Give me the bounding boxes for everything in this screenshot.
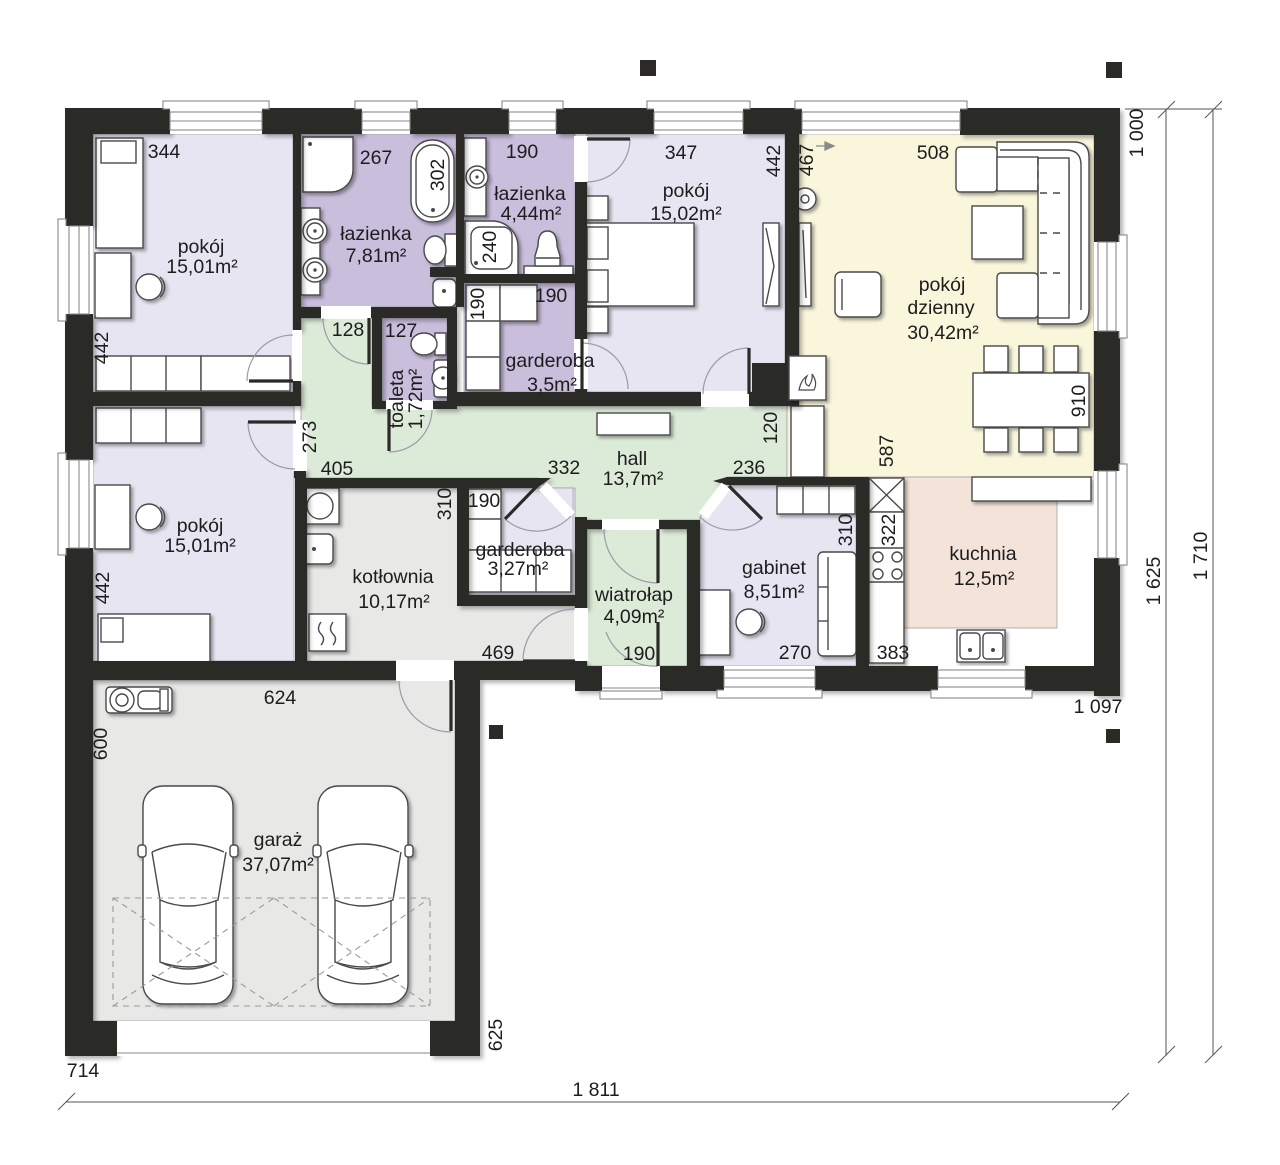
- svg-text:442: 442: [91, 332, 113, 365]
- svg-text:4,44m²: 4,44m²: [501, 203, 562, 225]
- svg-text:3,5m²: 3,5m²: [527, 374, 577, 396]
- svg-text:190: 190: [535, 285, 568, 307]
- svg-text:624: 624: [264, 687, 297, 709]
- svg-text:gabinet: gabinet: [742, 557, 807, 579]
- svg-text:120: 120: [760, 412, 782, 445]
- svg-text:127: 127: [385, 320, 418, 342]
- svg-text:wiatrołap: wiatrołap: [594, 584, 673, 606]
- svg-text:pokój: pokój: [919, 274, 966, 296]
- svg-text:pokój: pokój: [177, 515, 224, 537]
- svg-text:37,07m²: 37,07m²: [242, 854, 314, 876]
- svg-text:7,81m²: 7,81m²: [346, 245, 407, 267]
- svg-text:310: 310: [835, 514, 857, 547]
- svg-text:1 710: 1 710: [1190, 531, 1212, 580]
- svg-text:383: 383: [877, 642, 910, 664]
- svg-text:garaż: garaż: [254, 829, 303, 851]
- svg-text:508: 508: [917, 142, 950, 164]
- svg-text:240: 240: [479, 231, 501, 264]
- svg-text:310: 310: [434, 488, 456, 521]
- svg-text:15,01m²: 15,01m²: [164, 535, 236, 557]
- svg-text:8,51m²: 8,51m²: [744, 581, 805, 603]
- svg-text:1 097: 1 097: [1074, 696, 1123, 718]
- svg-text:302: 302: [427, 159, 449, 192]
- svg-text:467: 467: [796, 144, 818, 177]
- svg-text:13,7m²: 13,7m²: [603, 468, 664, 490]
- svg-text:344: 344: [148, 141, 181, 163]
- svg-text:30,42m²: 30,42m²: [907, 322, 979, 344]
- svg-text:pokój: pokój: [663, 180, 710, 202]
- svg-text:442: 442: [763, 145, 785, 178]
- svg-text:236: 236: [733, 457, 766, 479]
- svg-text:190: 190: [468, 490, 501, 512]
- svg-text:332: 332: [548, 457, 581, 479]
- svg-text:3,27m²: 3,27m²: [488, 558, 549, 580]
- svg-text:dzienny: dzienny: [907, 297, 974, 319]
- svg-text:łazienka: łazienka: [494, 183, 566, 205]
- svg-text:270: 270: [779, 642, 812, 664]
- svg-text:273: 273: [299, 421, 321, 454]
- svg-text:267: 267: [360, 147, 393, 169]
- svg-text:1 000: 1 000: [1126, 108, 1148, 157]
- svg-text:190: 190: [506, 141, 539, 163]
- svg-text:1,72m²: 1,72m²: [405, 368, 427, 429]
- svg-text:10,17m²: 10,17m²: [358, 591, 430, 613]
- svg-text:15,01m²: 15,01m²: [166, 256, 238, 278]
- svg-text:łazienka: łazienka: [340, 223, 412, 245]
- svg-text:600: 600: [90, 728, 112, 761]
- svg-text:pokój: pokój: [178, 236, 225, 258]
- svg-text:4,09m²: 4,09m²: [604, 606, 665, 628]
- svg-text:12,5m²: 12,5m²: [954, 568, 1015, 590]
- svg-text:910: 910: [1068, 385, 1090, 418]
- svg-text:347: 347: [665, 142, 698, 164]
- svg-text:625: 625: [485, 1019, 507, 1052]
- svg-text:1 625: 1 625: [1143, 556, 1165, 605]
- svg-text:hall: hall: [617, 448, 647, 470]
- svg-text:469: 469: [482, 642, 515, 664]
- svg-text:190: 190: [467, 288, 489, 321]
- svg-text:kuchnia: kuchnia: [949, 543, 1016, 565]
- svg-text:190: 190: [623, 643, 656, 665]
- svg-text:15,02m²: 15,02m²: [650, 203, 722, 225]
- svg-text:128: 128: [332, 319, 365, 341]
- svg-text:442: 442: [92, 572, 114, 605]
- svg-text:1 811: 1 811: [572, 1079, 619, 1101]
- svg-text:garderoba: garderoba: [506, 350, 595, 372]
- svg-text:587: 587: [876, 435, 898, 468]
- svg-text:kotłownia: kotłownia: [352, 566, 433, 588]
- svg-text:714: 714: [67, 1060, 100, 1082]
- svg-text:322: 322: [878, 514, 900, 547]
- svg-text:405: 405: [321, 458, 354, 480]
